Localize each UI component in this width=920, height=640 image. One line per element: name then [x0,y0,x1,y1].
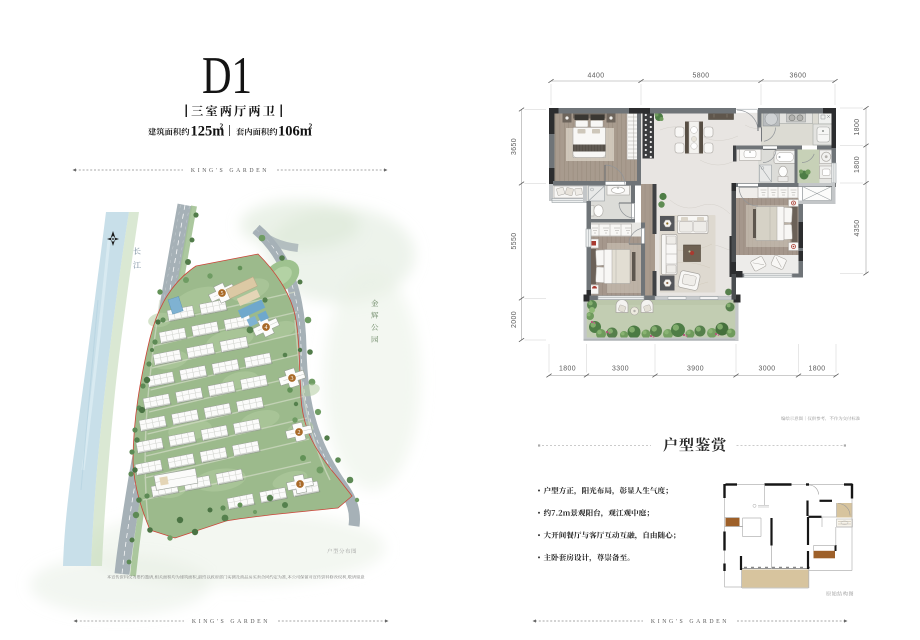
svg-text:3650: 3650 [511,138,518,155]
svg-text:KING'S GARDEN: KING'S GARDEN [191,168,269,174]
svg-text:2000: 2000 [511,311,518,328]
svg-text:3600: 3600 [790,73,807,80]
svg-text:5800: 5800 [693,73,710,80]
svg-text:2: 2 [220,122,224,131]
svg-text:KING'S GARDEN: KING'S GARDEN [192,619,270,625]
svg-text:3900: 3900 [687,366,704,373]
svg-text:3: 3 [291,376,294,382]
svg-text:1800: 1800 [559,366,576,373]
svg-text:3000: 3000 [759,366,776,373]
svg-text:1800: 1800 [854,119,861,136]
svg-text:106m: 106m [278,124,312,140]
svg-text:4: 4 [265,325,268,331]
svg-text:5550: 5550 [511,233,518,250]
svg-text:3300: 3300 [612,366,629,373]
svg-text:4350: 4350 [854,220,861,237]
svg-text:1800: 1800 [854,156,861,173]
svg-text:2: 2 [309,122,313,131]
svg-text:1: 1 [299,482,302,488]
svg-text:1800: 1800 [809,366,826,373]
svg-text:5: 5 [221,291,224,297]
svg-text:2: 2 [298,430,301,436]
svg-text:4400: 4400 [588,73,605,80]
svg-text:KING'S GARDEN: KING'S GARDEN [651,619,729,625]
svg-text:D1: D1 [202,47,252,105]
